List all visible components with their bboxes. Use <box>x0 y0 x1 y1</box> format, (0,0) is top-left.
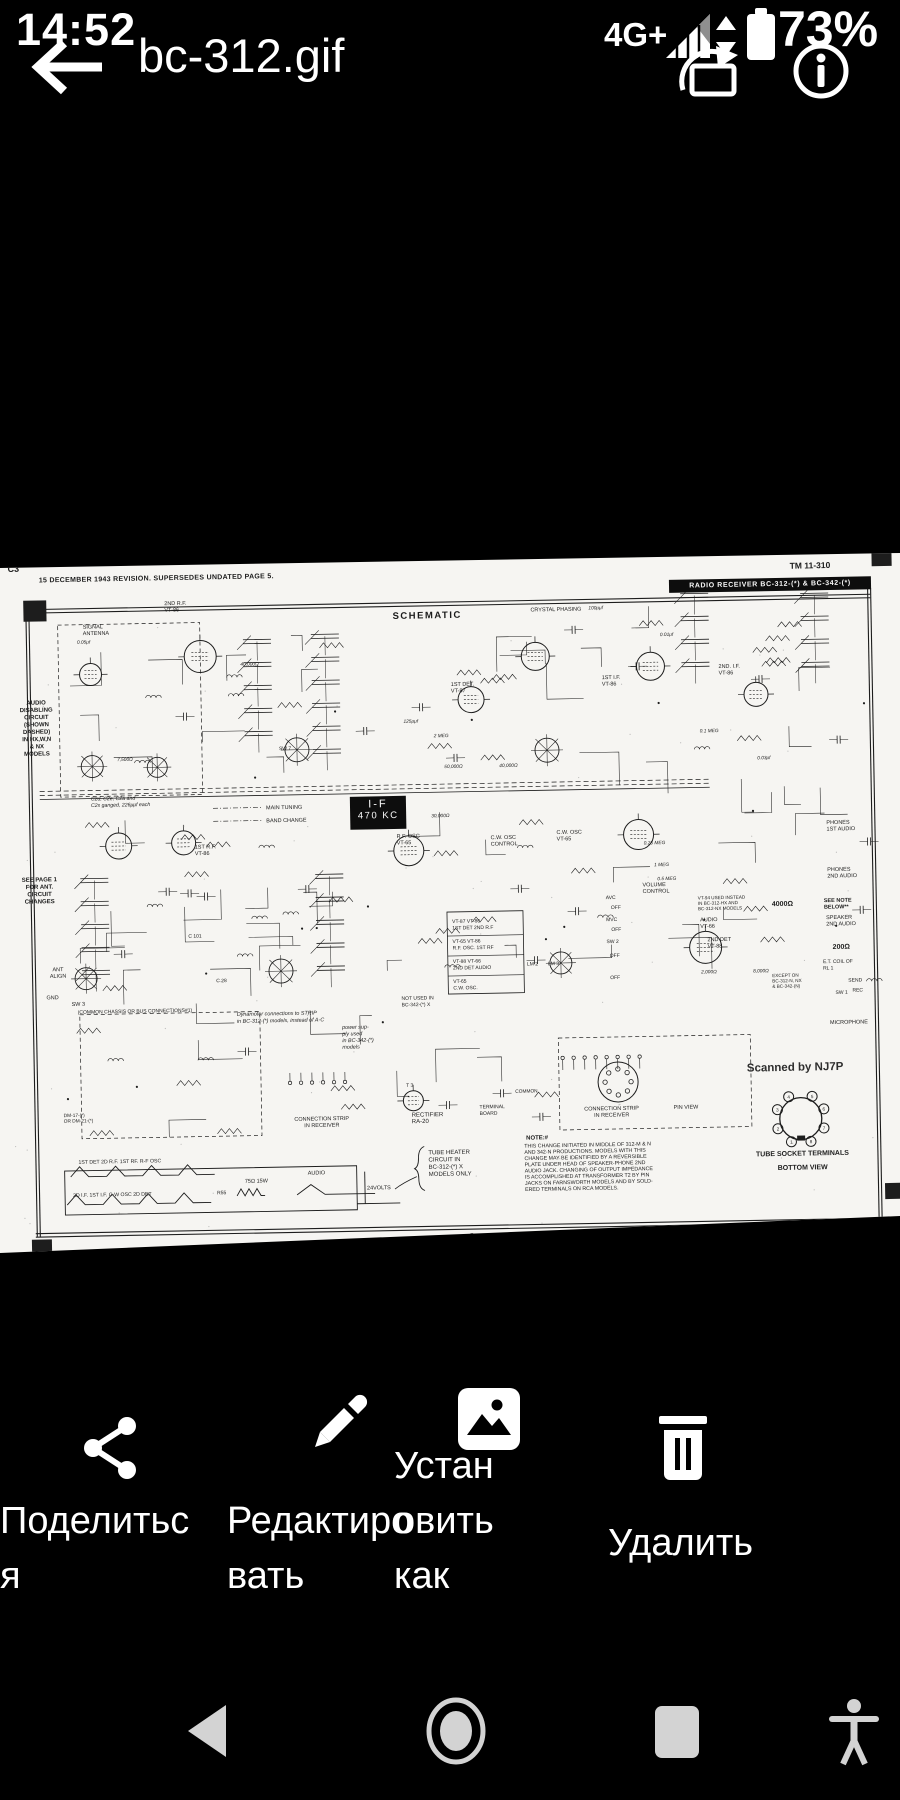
svg-text:1ST R.F.VT-86: 1ST R.F.VT-86 <box>195 844 217 857</box>
svg-text:100μμf: 100μμf <box>588 605 603 611</box>
svg-text:SW 1: SW 1 <box>835 990 848 996</box>
svg-text:2: 2 <box>777 1127 780 1132</box>
svg-text:THIS CHANGE INITIATED IN MIDDL: THIS CHANGE INITIATED IN MIDDLE OF 312-M… <box>524 1141 654 1193</box>
svg-text:VT-65 VT-86R.F. OSC. 1ST: VT-65 VT-86R.F. OSC. 1ST RF <box>452 938 493 951</box>
svg-text:AUDIO: AUDIO <box>308 1170 326 1176</box>
svg-text:ANTALIGN: ANTALIGN <box>50 967 67 980</box>
svg-text:0.1 MEG: 0.1 MEG <box>700 728 719 734</box>
sheet-tm-number: TM 11-310 <box>790 560 831 571</box>
svg-text:7,500Ω: 7,500Ω <box>117 757 133 763</box>
svg-text:PHONES2ND AUDIO: PHONES2ND AUDIO <box>827 867 858 880</box>
svg-text:SEND: SEND <box>848 977 862 983</box>
svg-text:PHONES1ST AUDIO: PHONES1ST AUDIO <box>826 820 856 833</box>
svg-text:SW 7: SW 7 <box>279 746 292 752</box>
svg-text:2,000Ω: 2,000Ω <box>700 969 717 975</box>
svg-text:C 28: C 28 <box>216 978 227 984</box>
svg-text:BOTTOM VIEW: BOTTOM VIEW <box>778 1164 829 1172</box>
svg-text:VT-88 VT-662ND DET AUD: VT-88 VT-662ND DET AUDIO <box>453 958 492 971</box>
file-title: bc-312.gif <box>138 28 344 83</box>
sheet-corner-mark: C3 <box>7 564 19 574</box>
sheet-heading: SCHEMATIC <box>392 610 461 622</box>
info-icon[interactable] <box>792 42 850 100</box>
if-label: I-F <box>350 798 406 811</box>
svg-text:OFF: OFF <box>610 953 620 959</box>
svg-text:CONNECTION STRIPIN RECEIVER: CONNECTION STRIPIN RECEIVER <box>584 1106 639 1120</box>
svg-text:VT-94 USED INSTEADIN BC-312-HX: VT-94 USED INSTEADIN BC-312-HX ANDBC-312… <box>698 895 746 912</box>
svg-text:MAIN TUNING: MAIN TUNING <box>266 805 302 812</box>
battery-icon <box>746 8 776 60</box>
svg-text:SEE PAGE 1FOR ANT.CIRCUITCHANG: SEE PAGE 1FOR ANT.CIRCUITCHANGES <box>22 877 58 906</box>
svg-text:2ND. I.F.VT-86: 2ND. I.F.VT-86 <box>718 664 740 677</box>
svg-text:R55: R55 <box>217 1190 226 1196</box>
svg-text:VT-65C.W. OSC.: VT-65C.W. OSC. <box>453 979 478 992</box>
svg-text:AUDIOVT-66: AUDIOVT-66 <box>700 917 718 930</box>
if-frequency: 470 KC <box>350 810 406 822</box>
svg-text:TERMINALBOARD: TERMINALBOARD <box>479 1104 505 1117</box>
svg-text:0.01μf: 0.01μf <box>660 632 674 638</box>
svg-text:0.05μf: 0.05μf <box>77 640 91 646</box>
set-as-label: Устан овить как <box>394 1439 494 1604</box>
status-network-type: 4G+ <box>604 16 667 54</box>
svg-text:BAND CHANGE: BAND CHANGE <box>266 818 307 825</box>
schematic-drawing: 12345678SIGNALANTENNA2ND R.F.VT-861ST DE… <box>0 532 900 1268</box>
scanned-by-credit: Scanned by NJ7P <box>747 1061 844 1075</box>
svg-text:1: 1 <box>790 1140 793 1145</box>
svg-text:40,000Ω: 40,000Ω <box>499 763 518 769</box>
svg-text:3: 3 <box>776 1107 779 1112</box>
svg-text:SW 3: SW 3 <box>72 1002 86 1008</box>
svg-text:1ST I.F.VT-86: 1ST I.F.VT-86 <box>602 675 622 688</box>
svg-text:0.5 MEG: 0.5 MEG <box>657 876 676 882</box>
svg-text:SEE NOTEBELOW**: SEE NOTEBELOW** <box>824 898 852 911</box>
svg-text:AUDIODISABLINGCIRCUIT(SHOWNDAS: AUDIODISABLINGCIRCUIT(SHOWNDASHED)IN HX,… <box>20 700 54 758</box>
svg-text:E.T. COIL OFRL 1: E.T. COIL OFRL 1 <box>823 959 853 972</box>
android-image-viewer: { "status_bar": { "time": "14:52", "netw… <box>0 0 900 1800</box>
share-label: Поделитьс я <box>0 1494 189 1604</box>
schematic-scan-image[interactable]: 12345678SIGNALANTENNA2ND R.F.VT-861ST DE… <box>0 540 900 1260</box>
svg-text:PIN VIEW: PIN VIEW <box>674 1104 700 1110</box>
nav-accessibility-icon[interactable] <box>826 1698 882 1766</box>
svg-text:1ST DET 2D R.F. 1ST: 1ST DET 2D R.F. 1ST RF. R-F OSC <box>78 1158 161 1166</box>
edit-label: Редактиро вать <box>227 1494 412 1604</box>
action-bar: Поделитьс я Редактиро вать Устан овить к… <box>0 1380 900 1620</box>
svg-text:2ND DETVT-88: 2ND DETVT-88 <box>707 937 731 950</box>
svg-text:T 3: T 3 <box>406 1083 413 1089</box>
svg-text:2D I.F. 1ST I.F. C-: 2D I.F. 1ST I.F. C-W OSC 2D DET <box>73 1191 153 1198</box>
svg-text:1ST DET.VT-87: 1ST DET.VT-87 <box>451 682 475 695</box>
svg-text:200Ω: 200Ω <box>833 944 851 951</box>
svg-text:OFF: OFF <box>611 905 621 911</box>
svg-text:C.W. OSCVT-65: C.W. OSCVT-65 <box>556 830 582 843</box>
svg-text:6: 6 <box>822 1107 825 1112</box>
svg-text:OFF: OFF <box>610 975 620 981</box>
svg-text:30,000Ω: 30,000Ω <box>431 813 450 819</box>
svg-text:EXCEPT ONBC-312-N, NX& BC-342-: EXCEPT ONBC-312-N, NX& BC-342-(N) <box>772 973 802 989</box>
svg-text:DM-17-(*)OR DM-21-(*): DM-17-(*)OR DM-21-(*) <box>64 1113 94 1125</box>
svg-text:REC: REC <box>852 987 863 993</box>
svg-text:CONNECTION STRIPIN RECEIVER: CONNECTION STRIPIN RECEIVER <box>294 1116 349 1130</box>
svg-text:LM 3: LM 3 <box>548 961 559 967</box>
svg-text:MVC: MVC <box>606 917 618 923</box>
svg-text:75Ω 15W: 75Ω 15W <box>245 1178 269 1184</box>
svg-text:8,000Ω: 8,000Ω <box>753 968 769 974</box>
svg-text:GND: GND <box>46 995 58 1001</box>
svg-text:4000Ω: 4000Ω <box>772 901 794 908</box>
svg-text:NOTE:#: NOTE:# <box>526 1135 549 1141</box>
svg-text:C 101: C 101 <box>188 934 202 940</box>
svg-text:0.03μf: 0.03μf <box>757 755 771 761</box>
svg-text:LM 2: LM 2 <box>527 961 538 967</box>
svg-text:24VOLTS: 24VOLTS <box>367 1185 391 1191</box>
nav-back-icon[interactable] <box>180 1702 238 1760</box>
svg-text:7: 7 <box>823 1126 826 1131</box>
svg-text:power sup-ply usedin BC-342-(*: power sup-ply usedin BC-342-(*)models <box>341 1024 374 1050</box>
svg-text:2 MEG: 2 MEG <box>433 733 449 739</box>
svg-text:AVC: AVC <box>606 895 616 901</box>
edit-pencil-icon <box>306 1392 368 1454</box>
nav-recents-icon[interactable] <box>652 1704 702 1760</box>
trash-icon <box>656 1414 710 1482</box>
svg-text:4: 4 <box>787 1095 790 1100</box>
svg-text:NOT USED INBC-342-(*) X: NOT USED INBC-342-(*) X <box>401 995 434 1008</box>
svg-text:VOLUMECONTROL: VOLUMECONTROL <box>642 882 669 895</box>
svg-text:CRYSTAL PHASING: CRYSTAL PHASING <box>530 607 581 614</box>
svg-text:VT-87 VT-861ST DET 2ND: VT-87 VT-861ST DET 2ND R.F <box>452 918 493 931</box>
svg-text:5: 5 <box>811 1094 814 1099</box>
svg-text:R.F. OSCVT-65: R.F. OSCVT-65 <box>397 834 420 847</box>
share-icon <box>82 1416 142 1480</box>
svg-text:40,000Ω: 40,000Ω <box>240 661 259 667</box>
svg-text:MICROPHONE: MICROPHONE <box>830 1019 868 1026</box>
svg-text:TUBE HEATERCIRCUIT INBC-312-(*: TUBE HEATERCIRCUIT INBC-312-(*) XMODELS … <box>428 1150 471 1178</box>
svg-text:OFF: OFF <box>611 927 621 933</box>
svg-text:5: 5 <box>470 1233 474 1240</box>
svg-text:8: 8 <box>810 1139 813 1144</box>
svg-text:C.W. OSCCONTROL: C.W. OSCCONTROL <box>491 835 518 848</box>
nav-home-icon[interactable] <box>424 1696 488 1766</box>
nav-bar <box>0 1690 900 1780</box>
delete-label: Удалить <box>608 1516 753 1571</box>
svg-text:RECTIFIERRA-20: RECTIFIERRA-20 <box>412 1112 445 1125</box>
svg-text:0.25 MEG: 0.25 MEG <box>644 840 666 846</box>
if-frequency-box: I-F 470 KC <box>350 796 407 830</box>
svg-text:COMMON: COMMON <box>515 1088 538 1094</box>
svg-text:SIGNALANTENNA: SIGNALANTENNA <box>83 624 110 637</box>
svg-text:TUBE SOCKET TERMINALS: TUBE SOCKET TERMINALS <box>756 1150 849 1159</box>
svg-text:SPEAKER2ND AUDIO: SPEAKER2ND AUDIO <box>826 915 857 928</box>
svg-text:(COMMON CHASSIS OR BUS CONNEC: (COMMON CHASSIS OR BUS CONNECTIONS#1) <box>78 1008 193 1016</box>
svg-text:50,000Ω: 50,000Ω <box>444 764 463 770</box>
rotate-screen-icon[interactable] <box>676 42 742 98</box>
back-arrow-icon[interactable] <box>26 36 108 98</box>
svg-text:125μμf: 125μμf <box>403 719 418 725</box>
svg-text:Dynamotor connections to STRIP: Dynamotor connections to STRIPin BC-312-… <box>237 1010 325 1025</box>
svg-text:SW 2: SW 2 <box>606 939 619 945</box>
svg-text:1 MEG: 1 MEG <box>654 862 669 868</box>
